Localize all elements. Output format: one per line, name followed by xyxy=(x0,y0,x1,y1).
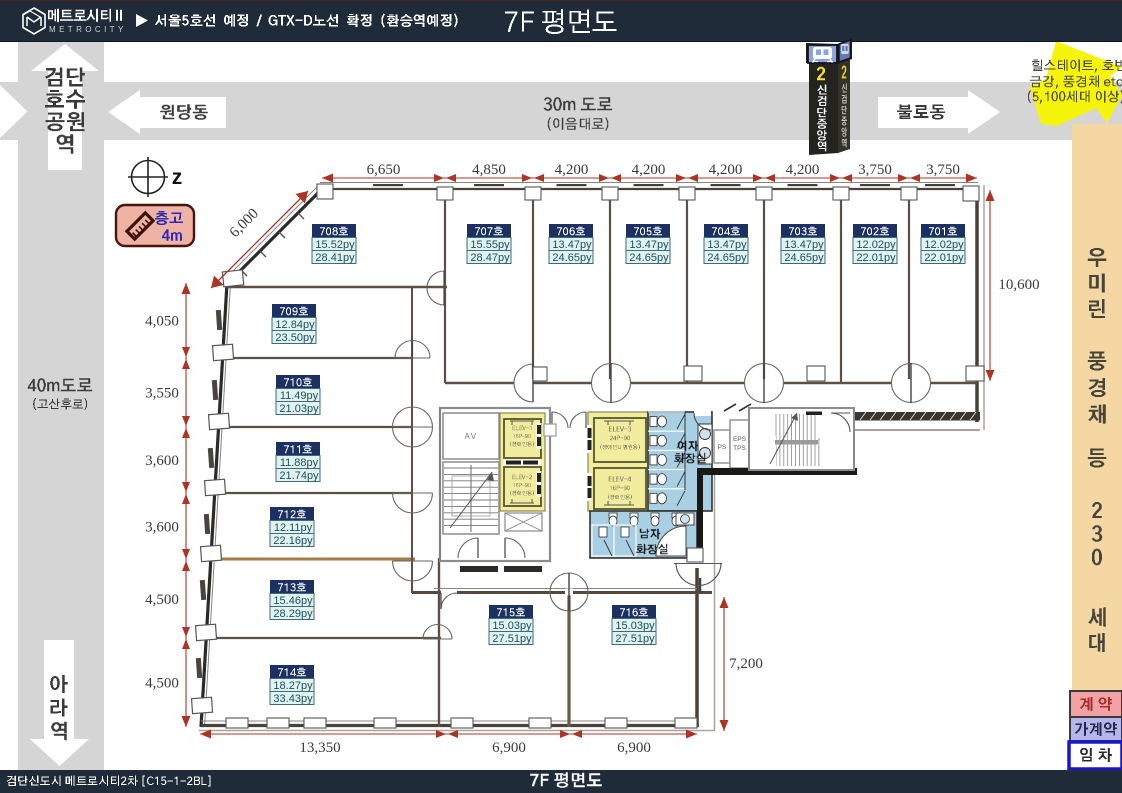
svg-text:13.47py: 13.47py xyxy=(707,239,747,251)
svg-text:4,850: 4,850 xyxy=(472,162,506,178)
svg-text:27.51py: 27.51py xyxy=(492,633,532,645)
svg-text:6,650: 6,650 xyxy=(367,162,401,178)
svg-text:6,900: 6,900 xyxy=(617,740,651,756)
svg-text:27.51py: 27.51py xyxy=(615,633,655,645)
svg-text:AV: AV xyxy=(464,432,477,441)
svg-text:PS: PS xyxy=(718,444,727,451)
svg-text:3,550: 3,550 xyxy=(145,386,179,402)
svg-text:METROCITY: METROCITY xyxy=(49,25,127,34)
svg-text:24.65py: 24.65py xyxy=(707,252,747,264)
svg-text:22.01py: 22.01py xyxy=(924,252,964,264)
svg-text:7,200: 7,200 xyxy=(729,656,763,672)
svg-text:4,500: 4,500 xyxy=(145,592,179,608)
svg-text:12.11py: 12.11py xyxy=(274,522,313,534)
svg-text:EPS: EPS xyxy=(733,436,747,443)
svg-text:23.50py: 23.50py xyxy=(275,332,315,344)
svg-text:4,200: 4,200 xyxy=(632,162,666,178)
svg-text:12.02py: 12.02py xyxy=(924,239,964,251)
svg-text:13,350: 13,350 xyxy=(299,740,340,756)
svg-text:28.41py: 28.41py xyxy=(315,252,355,264)
svg-text:15.55py: 15.55py xyxy=(470,239,510,251)
svg-text:4,500: 4,500 xyxy=(145,676,179,692)
svg-text:22.01py: 22.01py xyxy=(856,252,896,264)
svg-text:28.29py: 28.29py xyxy=(273,608,313,620)
svg-text:3,750: 3,750 xyxy=(858,162,892,178)
svg-text:11.88py: 11.88py xyxy=(280,457,319,469)
svg-text:21.74py: 21.74py xyxy=(279,470,319,482)
svg-text:3,600: 3,600 xyxy=(145,453,179,469)
svg-text:6,900: 6,900 xyxy=(492,740,526,756)
svg-text:15.03py: 15.03py xyxy=(492,620,532,632)
svg-text:13.47py: 13.47py xyxy=(784,239,824,251)
svg-text:11.49py: 11.49py xyxy=(280,390,319,402)
svg-text:3,750: 3,750 xyxy=(926,162,960,178)
svg-text:22.16py: 22.16py xyxy=(273,535,313,547)
svg-text:4,200: 4,200 xyxy=(555,162,589,178)
svg-text:24.65py: 24.65py xyxy=(784,252,824,264)
svg-text:15.52py: 15.52py xyxy=(315,239,355,251)
svg-text:TPS: TPS xyxy=(733,445,746,452)
svg-text:18.27py: 18.27py xyxy=(273,680,313,692)
svg-text:24.65py: 24.65py xyxy=(629,252,669,264)
svg-text:13.47py: 13.47py xyxy=(552,239,592,251)
svg-text:24.65py: 24.65py xyxy=(552,252,592,264)
svg-text:4,050: 4,050 xyxy=(145,314,179,330)
svg-text:4,200: 4,200 xyxy=(786,162,820,178)
svg-text:28.47py: 28.47py xyxy=(470,252,510,264)
svg-text:4,200: 4,200 xyxy=(709,162,743,178)
svg-text:21.03py: 21.03py xyxy=(279,403,319,415)
svg-text:33.43py: 33.43py xyxy=(273,693,313,705)
svg-text:13.47py: 13.47py xyxy=(629,239,669,251)
svg-text:12.02py: 12.02py xyxy=(856,239,896,251)
svg-text:3,600: 3,600 xyxy=(145,520,179,536)
svg-text:12.84py: 12.84py xyxy=(275,319,315,331)
svg-text:10,600: 10,600 xyxy=(998,277,1039,293)
svg-text:15.03py: 15.03py xyxy=(615,620,655,632)
svg-text:15.46py: 15.46py xyxy=(273,595,313,607)
svg-text:z: z xyxy=(172,166,183,189)
